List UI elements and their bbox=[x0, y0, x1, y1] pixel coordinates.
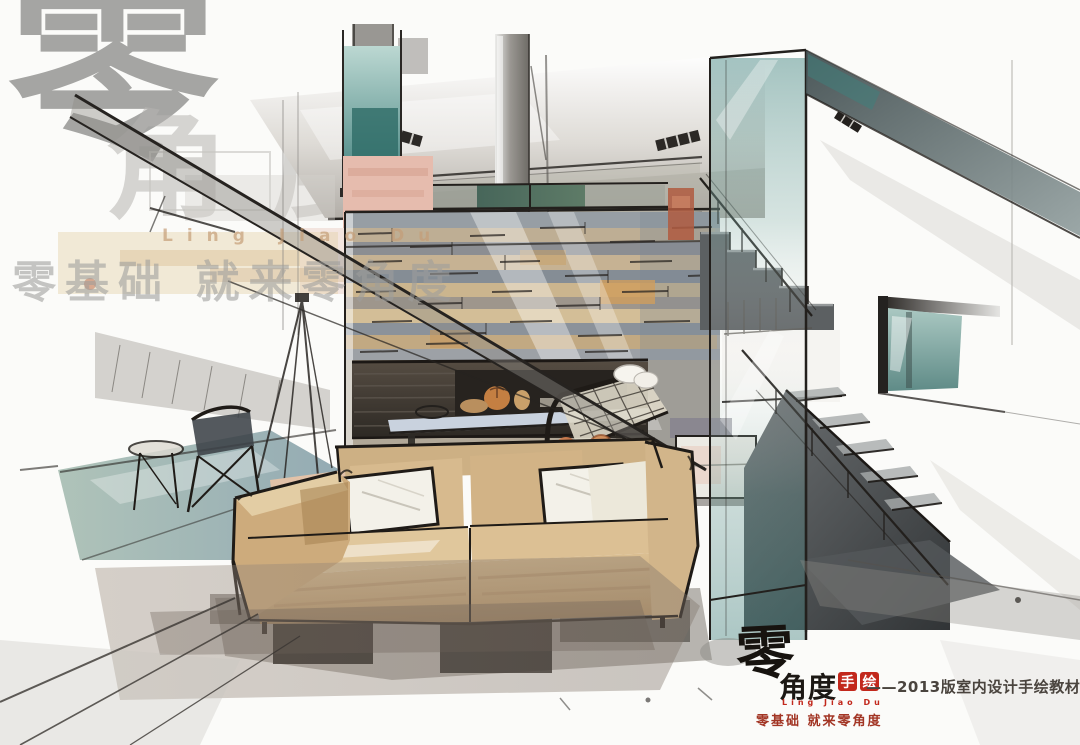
logo-slogan: 零基础 就来零角度 bbox=[756, 710, 883, 729]
rust-accent-panel bbox=[668, 188, 694, 240]
brand-logo: 零 角度 手 绘 ——2013版室内设计手绘教材 Ling Jiao Du 零基… bbox=[718, 624, 1080, 740]
white-pillow bbox=[345, 468, 438, 534]
interior-sketch-artwork: 零 角度 bbox=[0, 0, 1080, 745]
logo-seal-char: 手 bbox=[838, 672, 857, 691]
transom-window bbox=[433, 183, 668, 209]
jar bbox=[514, 390, 530, 410]
staircase bbox=[700, 50, 1080, 640]
bowl bbox=[460, 399, 488, 413]
window-opening bbox=[878, 296, 1080, 424]
logo-latin: Ling Jiao Du bbox=[782, 698, 884, 707]
logo-caption: ——2013版室内设计手绘教材 bbox=[866, 676, 1080, 697]
glass-partition bbox=[710, 50, 806, 640]
